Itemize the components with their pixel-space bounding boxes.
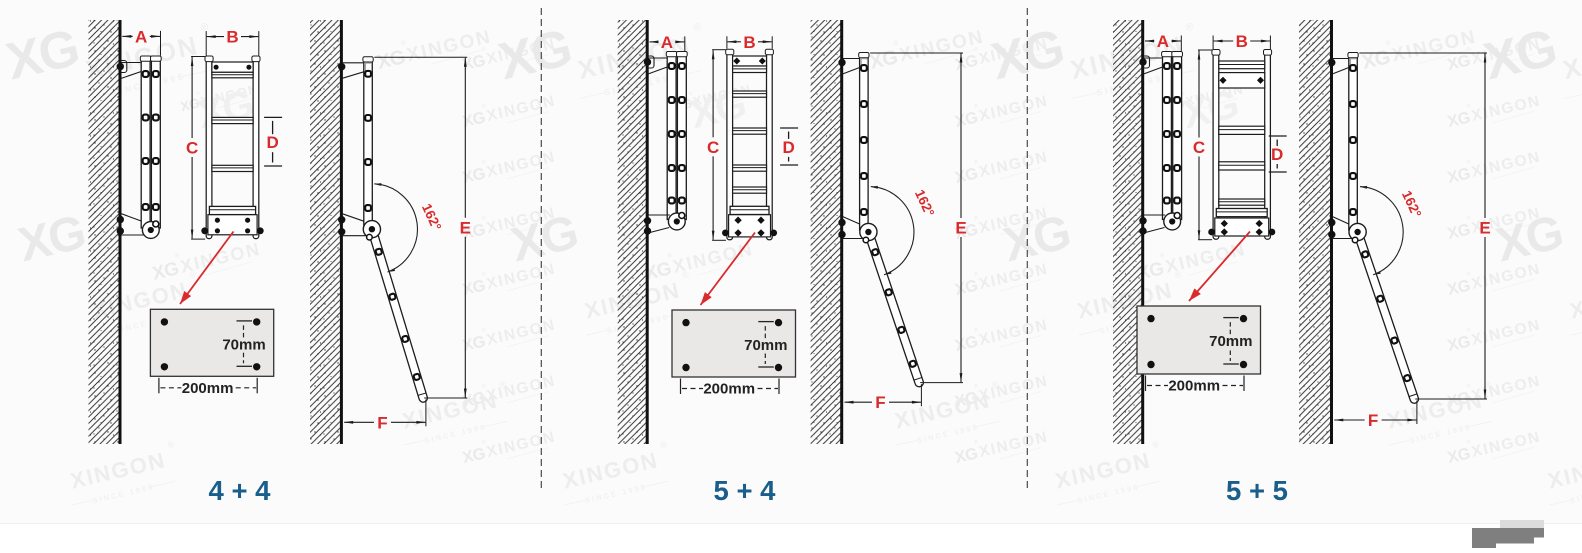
svg-text:C: C <box>1193 138 1205 157</box>
svg-text:E: E <box>955 219 966 238</box>
svg-text:F: F <box>1368 411 1378 430</box>
svg-text:5 + 4: 5 + 4 <box>714 475 777 506</box>
svg-text:200mm: 200mm <box>182 380 234 397</box>
svg-text:C: C <box>707 138 719 157</box>
svg-text:D: D <box>782 138 794 157</box>
svg-text:70mm: 70mm <box>1209 333 1252 350</box>
svg-text:D: D <box>1271 145 1283 164</box>
svg-text:E: E <box>1479 219 1490 238</box>
svg-text:70mm: 70mm <box>744 337 787 354</box>
svg-text:C: C <box>186 139 198 158</box>
svg-text:B: B <box>743 33 755 52</box>
svg-text:F: F <box>875 393 885 412</box>
svg-text:B: B <box>226 28 238 47</box>
svg-text:A: A <box>135 27 147 46</box>
svg-text:A: A <box>661 33 673 52</box>
svg-text:4 + 4: 4 + 4 <box>209 475 272 506</box>
svg-text:E: E <box>460 218 471 237</box>
svg-text:5 + 5: 5 + 5 <box>1226 475 1288 506</box>
svg-text:200mm: 200mm <box>1168 378 1220 395</box>
svg-text:A: A <box>1157 32 1169 51</box>
svg-text:200mm: 200mm <box>703 381 755 398</box>
svg-text:D: D <box>266 133 278 152</box>
svg-text:70mm: 70mm <box>222 336 265 353</box>
svg-text:F: F <box>377 413 387 432</box>
svg-text:B: B <box>1236 32 1248 51</box>
